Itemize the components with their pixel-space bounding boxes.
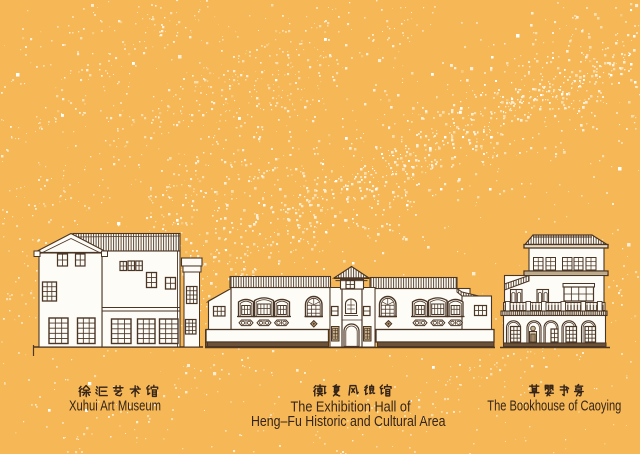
svg-text:Heng–Fu Historic and Cultural: Heng–Fu Historic and Cultural Area	[251, 414, 446, 430]
svg-text:Xuhui Art Museum: Xuhui Art Museum	[69, 399, 161, 415]
svg-text:The Bookhouse of Caoying: The Bookhouse of Caoying	[487, 399, 621, 415]
